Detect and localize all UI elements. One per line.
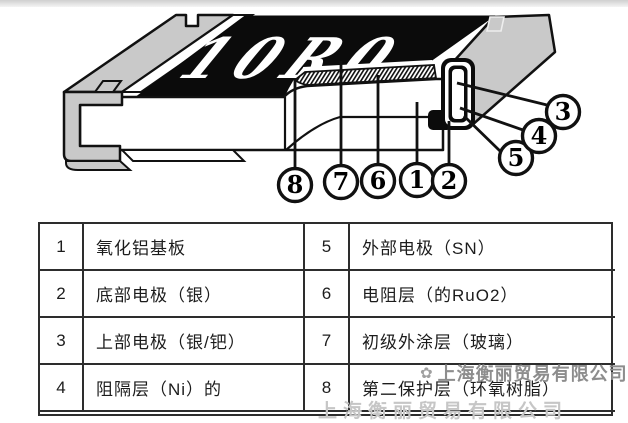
left-cap-foot [66, 161, 130, 170]
svg-text:1: 1 [409, 165, 426, 194]
watermark-logo-icon: ✿ [420, 364, 434, 382]
page: { "diagram": { "marking": "10R0", "callo… [0, 0, 628, 405]
legend-row1-num-right: 5 [305, 224, 350, 271]
company-watermark: ✿ 上海衡丽贸易有限公司 [420, 360, 628, 386]
watermark-company-name: 上海衡丽贸易有限公司 [438, 360, 628, 386]
legend-row3-num-left: 3 [40, 318, 84, 365]
callout-6: 6 [362, 165, 395, 198]
end-ring-core [452, 69, 464, 119]
callout-8: 8 [279, 169, 312, 202]
legend-row1-num-left: 1 [40, 224, 84, 271]
legend-row2-desc-right: 电阻层（的RuO2） [350, 271, 615, 318]
body-bottom-face [122, 150, 244, 161]
legend-row1-desc-left: 氧化铝基板 [84, 224, 305, 271]
legend-row2-num-right: 6 [305, 271, 350, 318]
callout-1: 1 [401, 164, 434, 197]
legend-row2-desc-left: 底部电极（银） [84, 271, 305, 318]
svg-text:8: 8 [287, 170, 304, 199]
legend-row3-desc-right: 初级外涂层（玻璃） [350, 318, 615, 365]
legend-row3-num-right: 7 [305, 318, 350, 365]
legend-row2-num-left: 2 [40, 271, 84, 318]
callout-3: 3 [547, 96, 580, 129]
legend-row1-desc-right: 外部电极（SN） [350, 224, 615, 271]
svg-text:6: 6 [370, 166, 387, 195]
resistor-cutaway-diagram: 10R0 8 7 [0, 4, 628, 216]
svg-text:2: 2 [441, 166, 458, 195]
callout-2: 2 [433, 165, 466, 198]
resistor-diagram-svg: 10R0 8 7 [0, 4, 628, 216]
svg-text:5: 5 [508, 143, 525, 172]
svg-text:3: 3 [555, 97, 572, 126]
company-watermark-partial: 上海衡丽贸易有限公司 [318, 396, 568, 423]
legend-table: 1 氧化铝基板 5 外部电极（SN） 2 底部电极（银） 6 电阻层（的RuO2… [38, 222, 613, 416]
right-slab-notch [487, 17, 504, 31]
svg-text:7: 7 [333, 167, 350, 196]
callout-7: 7 [325, 166, 358, 199]
svg-text:4: 4 [531, 121, 548, 150]
legend-row3-desc-left: 上部电极（银/钯） [84, 318, 305, 365]
